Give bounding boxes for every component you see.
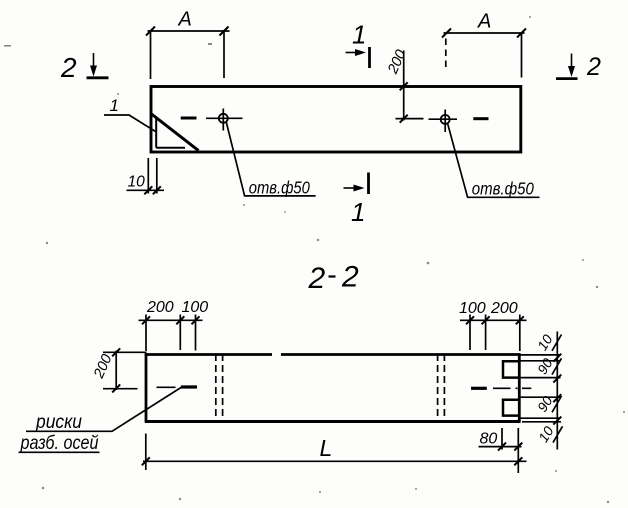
svg-text:2: 2	[586, 53, 601, 81]
svg-text:L: L	[320, 435, 333, 461]
svg-text:отв.ф50: отв.ф50	[249, 178, 310, 198]
svg-text:1: 1	[352, 20, 366, 50]
svg-text:A: A	[477, 11, 491, 33]
svg-text:2: 2	[308, 262, 326, 295]
svg-text:10: 10	[128, 174, 146, 191]
svg-text:100: 100	[459, 300, 486, 317]
svg-text:200: 200	[146, 299, 174, 316]
svg-text:A: A	[178, 9, 192, 31]
svg-text:2: 2	[60, 52, 77, 83]
svg-text:риски: риски	[35, 412, 82, 433]
svg-text:200: 200	[490, 300, 518, 317]
svg-text:80: 80	[480, 431, 498, 448]
svg-text:1: 1	[351, 197, 365, 227]
svg-text:2: 2	[341, 261, 359, 294]
svg-text:отв.ф50: отв.ф50	[472, 179, 534, 199]
svg-text:1: 1	[110, 96, 119, 115]
svg-text:разб. осей: разб. осей	[20, 433, 99, 454]
svg-text:100: 100	[182, 299, 209, 316]
